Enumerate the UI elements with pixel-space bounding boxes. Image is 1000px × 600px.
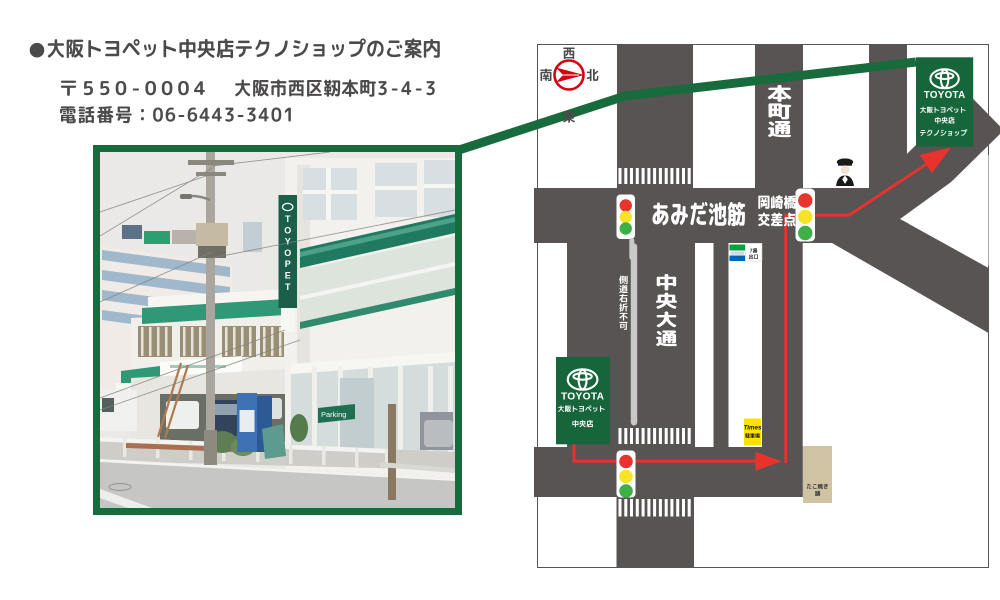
svg-text:Y: Y — [285, 237, 291, 247]
svg-text:P: P — [285, 259, 291, 269]
svg-text:TOYOTA: TOYOTA — [924, 90, 966, 101]
svg-text:T: T — [285, 214, 291, 224]
svg-text:O: O — [284, 225, 291, 235]
svg-text:Parking: Parking — [321, 410, 346, 419]
svg-text:TOYOTA: TOYOTA — [561, 392, 605, 403]
svg-text:T: T — [285, 282, 291, 292]
svg-text:E: E — [285, 271, 291, 281]
svg-text:O: O — [284, 248, 291, 258]
svg-text:Times: Times — [744, 425, 762, 432]
